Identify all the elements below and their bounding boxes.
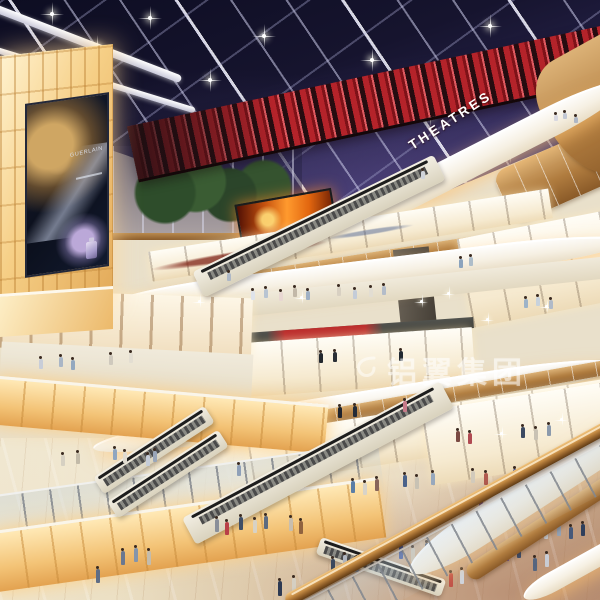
person — [263, 513, 268, 529]
person — [236, 462, 241, 476]
person — [458, 256, 463, 268]
person — [152, 448, 157, 462]
person — [214, 516, 219, 532]
person — [133, 545, 138, 562]
person — [352, 287, 357, 299]
person — [252, 517, 257, 533]
person — [112, 446, 117, 460]
person — [146, 548, 151, 565]
person — [523, 296, 528, 308]
person — [532, 555, 537, 571]
person — [318, 350, 323, 363]
person — [250, 288, 255, 300]
person — [562, 110, 567, 119]
person — [350, 478, 355, 493]
person — [75, 450, 80, 464]
person — [368, 285, 373, 297]
person — [580, 521, 585, 536]
person — [483, 470, 488, 485]
person — [38, 356, 43, 369]
watermark-swirl-logo — [350, 354, 382, 386]
person — [120, 548, 125, 565]
person — [467, 430, 472, 444]
person — [122, 449, 127, 463]
person — [277, 578, 282, 596]
person — [352, 403, 357, 417]
person — [381, 283, 386, 295]
person — [336, 284, 341, 296]
person — [374, 476, 379, 491]
person — [520, 424, 525, 438]
person — [402, 398, 407, 412]
person — [288, 515, 293, 531]
person — [420, 168, 425, 179]
watermark-text: 铝翼集团 — [387, 348, 527, 392]
person — [332, 349, 337, 362]
person — [455, 428, 460, 442]
person — [305, 288, 310, 300]
person — [298, 518, 303, 534]
person — [414, 474, 419, 489]
person — [95, 566, 100, 583]
person — [535, 294, 540, 306]
person — [430, 470, 435, 485]
watermark: 铝翼集团 — [350, 348, 527, 392]
person — [573, 114, 578, 123]
person — [58, 354, 63, 367]
person — [263, 286, 268, 298]
person — [568, 524, 573, 539]
person — [226, 270, 231, 281]
person — [128, 350, 133, 363]
person — [60, 452, 65, 466]
person — [278, 289, 283, 301]
mall-atrium-scene: THEATRES TAI TAI TAI TAI GUERLAIN — [0, 0, 600, 600]
person — [468, 254, 473, 266]
person — [292, 285, 297, 297]
person — [238, 514, 243, 530]
person — [145, 452, 150, 466]
person — [402, 472, 407, 487]
person — [546, 422, 551, 436]
person — [224, 519, 229, 535]
person — [548, 297, 553, 309]
person — [362, 480, 367, 495]
person — [544, 551, 549, 567]
person — [337, 404, 342, 418]
person — [533, 426, 538, 440]
person — [470, 468, 475, 483]
person — [70, 357, 75, 370]
person — [553, 112, 558, 121]
person — [108, 352, 113, 365]
